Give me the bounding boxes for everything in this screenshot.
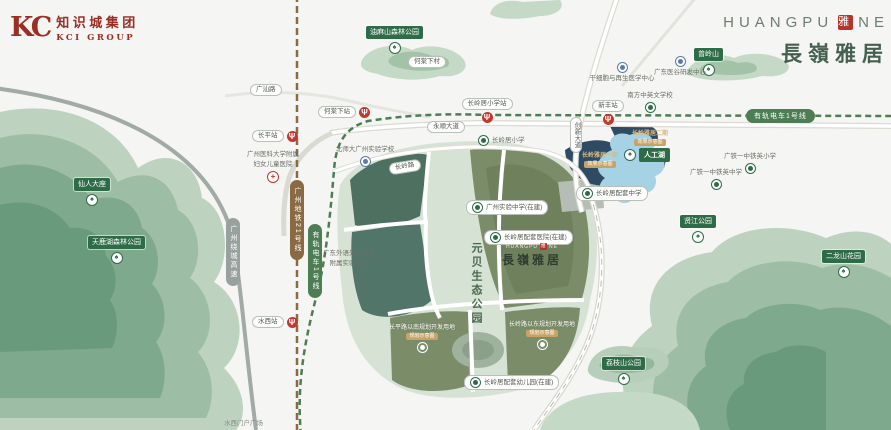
station-hetangxia-label: 何棠下站 [318, 106, 356, 118]
research-icon [675, 56, 686, 67]
kci-logo-mark: KC [10, 15, 50, 41]
project-brand: HUANGPU 雅 NE 長嶺雅居 [723, 14, 889, 68]
poi-medical-valley-label: 广东医谷研发中心 [654, 69, 706, 77]
park-xianrendazuo-label: 仙人大座 [74, 178, 110, 191]
tree-icon: ♠ [624, 149, 636, 161]
brand-en-suffix: NE [858, 14, 889, 31]
poi-kindergarten-label: 长岭居配套幼儿园(在建) [484, 379, 553, 387]
poi-changlingju-primary-label: 长岭居小学 [492, 137, 525, 145]
station-changlingju-primary-label: 长岭居小学站 [462, 98, 513, 110]
poi-experimental-school-label: 广州实验中学(在建) [486, 204, 542, 212]
parcel-east-development: 长岭路以东规划开发用地 规划示意图 [494, 319, 590, 350]
road-chuangxin-label: 创新大道 [570, 117, 582, 153]
station-changlingju-primary: 长岭居小学站 Ψ [452, 98, 522, 123]
eco-park-title: 元贝生态公园 [468, 242, 484, 326]
kci-company-name-en: KCI GROUP [56, 33, 139, 43]
school-icon [360, 156, 371, 167]
poi-medical-valley: 广东医谷研发中心 [648, 56, 712, 77]
tree-icon: ♠ [838, 266, 850, 278]
project-brand-cn: 長嶺雅居 [723, 38, 889, 68]
lake-label-group: ♠ 人工湖 [624, 148, 670, 162]
park-youmashan: 油麻山森林公园 ♠ [366, 26, 423, 54]
park-tianluhu-label: 天鹿湖森林公园 [88, 236, 145, 249]
poi-experimental-school: 广州实验中学(在建) [466, 200, 548, 215]
parcel-phase2-label: 长岭雅居二期 [632, 128, 668, 137]
station-shuixi-label: 水西站 [252, 316, 284, 328]
parcel-south-development: 长平路以南规划开发用地 规划示意图 [374, 322, 470, 353]
station-changping-label: 长平站 [252, 130, 284, 142]
park-xianjiang-label: 贤江公园 [680, 215, 716, 228]
road-yongshun-label: 永顺大道 [427, 121, 465, 133]
tree-icon: ♠ [692, 231, 704, 243]
park-xianrendazuo: 仙人大座 ♠ [74, 178, 110, 206]
brand-en-text: HUANGPU [723, 14, 833, 31]
poi-nanfang-school-label: 南方中英文学校 [627, 92, 673, 100]
station-changping: 长平站 Ψ [252, 130, 298, 142]
school-icon [472, 202, 483, 213]
parcel-east-tag: 规划示意图 [526, 330, 557, 337]
park-youmashan-label: 油麻山森林公园 [366, 26, 423, 39]
tree-icon: ♠ [111, 252, 123, 264]
school-icon [582, 188, 593, 199]
map-canvas: KC 知识城集团 KCI GROUP HUANGPU 雅 NE 長嶺雅居 广州绕… [0, 0, 891, 430]
ring-expressway-label: 广州绕城高速 [226, 218, 240, 286]
poi-support-middle-school-label: 长岭居配套中学 [596, 190, 642, 198]
poi-support-hospital-label: 长岭居配套医院(在建) [504, 234, 567, 242]
kci-logo: KC 知识城集团 KCI GROUP [10, 12, 139, 43]
tree-icon: ♠ [389, 42, 401, 54]
facility-icon [490, 232, 501, 243]
ya-seal-icon: 雅 [838, 15, 853, 30]
kci-company-name-cn: 知识城集团 [56, 12, 139, 31]
poi-stemcell-center-label: 干细胞与再生医学中心 [590, 75, 655, 83]
poi-tieying-middle: 广铁一中铁英中学 [684, 169, 748, 190]
tree-icon: ♠ [618, 373, 630, 385]
site-marker-icon [537, 339, 548, 350]
poi-nanfang-school: 南方中英文学校 [620, 92, 680, 113]
site-brand-cn: 長嶺雅居 [490, 251, 574, 268]
park-xianjiang: 贤江公园 ♠ [680, 215, 716, 243]
parcel-south-tag: 规划示意图 [406, 333, 437, 340]
parcel-phase1: 长岭雅居一期 效果示意图 [574, 150, 626, 168]
station-hetangxia: 何棠下站 Ψ [318, 106, 370, 118]
parcel-east-label: 长岭路以东规划开发用地 [509, 319, 575, 328]
parcel-phase2-tag: 效果示意图 [634, 139, 665, 146]
poi-hospital-line1: 广州医科大学附属 [247, 151, 299, 159]
poi-tieying-middle-label: 广铁一中铁英中学 [690, 169, 742, 177]
school-icon [645, 102, 656, 113]
metro-line21-label: 广州地铁21号线 [290, 180, 304, 260]
ya-seal-icon: 雅 [540, 243, 547, 250]
poi-changlingju-primary: 长岭居小学 [478, 135, 525, 146]
metro-station-icon: Ψ [287, 131, 298, 142]
park-erlongshan-label: 二龙山花园 [822, 250, 865, 263]
tram-station-icon: Ψ [359, 107, 370, 118]
parcel-south-label: 长平路以南规划开发用地 [389, 322, 455, 331]
park-lizhishan-label: 荔枝山公园 [602, 357, 645, 370]
poi-hospital-line2: 妇女儿童医院 [254, 161, 293, 169]
lake-label: 人工湖 [639, 148, 670, 162]
tree-icon: ♠ [86, 194, 98, 206]
poi-gdufs-school-line1: 广东外语外贸大学 [323, 250, 375, 258]
hospital-icon: + [267, 171, 279, 183]
poi-gdufs-school: 广东外语外贸大学 附属实验学校 [316, 250, 382, 268]
site-brand-en-prefix: HUANGPU [506, 244, 538, 250]
poi-shuixi-plaza-label: 水西门户广场 [224, 417, 263, 427]
site-brand-en: HUANGPU 雅 NE [490, 243, 574, 250]
school-icon [478, 135, 489, 146]
park-erlongshan: 二龙山花园 ♠ [822, 250, 865, 278]
research-icon [617, 62, 628, 73]
parcel-phase1-tag: 效果示意图 [584, 161, 615, 168]
site-brand-en-suffix: NE [549, 244, 558, 250]
poi-bnu-school-label: 北师大广州实验学校 [336, 146, 395, 154]
parcel-phase1-label: 长岭雅居一期 [582, 150, 618, 159]
station-shuixi: 水西站 Ψ [252, 316, 298, 328]
site-brand: HUANGPU 雅 NE 長嶺雅居 [490, 243, 574, 268]
tram-station-icon: Ψ [603, 114, 614, 125]
tram-station-icon: Ψ [482, 112, 493, 123]
school-icon [470, 377, 481, 388]
tram-line1-label-horizontal: 有轨电车1号线 [746, 109, 815, 123]
metro-station-icon: Ψ [287, 317, 298, 328]
park-lizhishan: 荔枝山公园 ♠ [602, 357, 645, 385]
poi-tieying-primary-label: 广铁一中铁英小学 [724, 153, 776, 161]
poi-bnu-school: 北师大广州实验学校 [328, 146, 402, 167]
poi-hospital: 广州医科大学附属 妇女儿童医院 + [234, 151, 312, 183]
poi-support-middle-school: 长岭居配套中学 [576, 186, 648, 201]
poi-gdufs-school-line2: 附属实验学校 [330, 260, 369, 268]
project-brand-en: HUANGPU 雅 NE [723, 14, 889, 31]
road-guangshan-label: 广汕路 [250, 84, 282, 96]
parcel-phase2: 长岭雅居二期 效果示意图 [626, 128, 674, 146]
park-tianluhu: 天鹿湖森林公园 ♠ [88, 236, 145, 264]
site-marker-icon [417, 342, 428, 353]
poi-kindergarten: 长岭居配套幼儿园(在建) [464, 375, 559, 390]
village-hetangxia-label: 何棠下村 [408, 56, 446, 68]
school-icon [711, 179, 722, 190]
